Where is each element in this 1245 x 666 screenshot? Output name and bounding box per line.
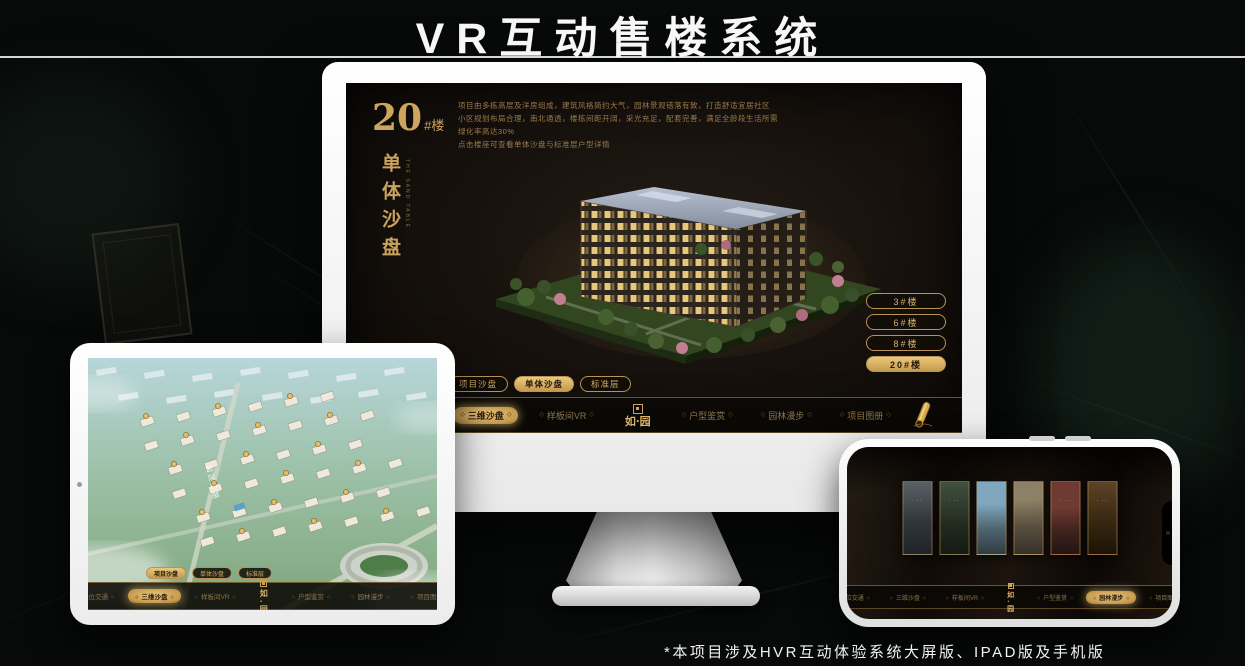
tablet-tab-group: 项目沙盘单体沙盘标准层 [146, 567, 272, 579]
screen-subtitle-latin: THE SAND TABLE [404, 159, 410, 229]
tablet-screen: 园区三路 项目沙盘单体沙盘标准层 区位交通三维沙盘样板间VR如·园户型鉴赏园林漫… [88, 358, 437, 610]
nav-item-样板间VR[interactable]: 样板间VR [532, 407, 601, 424]
seal-dot [262, 582, 265, 585]
building-render [486, 149, 886, 369]
description-line: 项目由多栋高层及洋房组成，建筑风格简约大气，园林景观错落有致，打造舒适宜居社区 [458, 99, 802, 112]
tab-标准层[interactable]: 标准层 [580, 376, 631, 392]
phone-nav-bar: 区位交通三维沙盘样板间VR如·园户型鉴赏园林漫步项目图册 [847, 585, 1172, 609]
seal-dot [1009, 584, 1012, 587]
map-signboard [92, 223, 193, 345]
tablet-device: 园区三路 项目沙盘单体沙盘标准层 区位交通三维沙盘样板间VR如·园户型鉴赏园林漫… [70, 343, 455, 625]
monitor-stand-neck [566, 510, 742, 594]
panorama-panel-6[interactable] [1087, 481, 1117, 555]
brand-seal-icon [633, 404, 643, 414]
description-line: 小区规划布局合理，南北通透，楼栋间距开阔，采光充足，配套完善，满足全龄段生活所需 [458, 112, 802, 125]
nav-item-三维沙盘[interactable]: 三维沙盘 [883, 591, 933, 604]
building-suffix: #楼 [424, 118, 444, 133]
panorama-panel-4[interactable] [1013, 481, 1043, 555]
floor-button-3#楼[interactable]: 3#楼 [866, 293, 946, 309]
tab-项目沙盘[interactable]: 项目沙盘 [146, 567, 186, 579]
title-divider [0, 56, 1245, 58]
nav-item-户型鉴赏[interactable]: 户型鉴赏 [675, 407, 740, 424]
panorama-panel-1[interactable] [902, 481, 932, 555]
nav-item-三维沙盘[interactable]: 三维沙盘 [453, 407, 518, 424]
nav-item-区位交通[interactable]: 区位交通 [88, 589, 121, 603]
nav-item-园林漫步[interactable]: 园林漫步 [1086, 591, 1136, 604]
building-number: 20 [372, 97, 422, 139]
brand-logo-text: 如·园 [1007, 591, 1014, 612]
tab-单体沙盘[interactable]: 单体沙盘 [514, 376, 574, 392]
brand-logo: 如·园 [625, 404, 651, 427]
nav-item-项目图册[interactable]: 项目图册 [833, 407, 898, 424]
nav-item-园林漫步[interactable]: 园林漫步 [754, 407, 819, 424]
description-line: 绿化率高达30% [458, 125, 802, 138]
floor-button-group: 3#楼6#楼8#楼20#楼 [866, 293, 946, 372]
sandbox-tab-group: 项目沙盘单体沙盘标准层 [448, 376, 631, 392]
monitor-stand-base [552, 586, 760, 606]
phone-screen: 区位交通三维沙盘样板间VR如·园户型鉴赏园林漫步项目图册 [847, 447, 1172, 619]
nav-item-项目图册[interactable]: 项目图册 [1142, 591, 1172, 604]
building-title: 20#楼 [372, 97, 444, 139]
phone-notch [1162, 501, 1172, 565]
phone-volume-button [1065, 436, 1091, 441]
nav-item-园林漫步[interactable]: 园林漫步 [344, 589, 397, 603]
screen-subtitle-vertical: 单体沙盘 [376, 153, 403, 265]
tab-单体沙盘[interactable]: 单体沙盘 [192, 567, 232, 579]
nav-item-样板间VR[interactable]: 样板间VR [939, 591, 991, 604]
phone-volume-button [1029, 436, 1055, 441]
project-description: 项目由多栋高层及洋房组成，建筑风格简约大气，园林景观错落有致，打造舒适宜居社区小… [458, 99, 802, 151]
panorama-panel-3[interactable] [976, 481, 1006, 555]
floor-button-6#楼[interactable]: 6#楼 [866, 314, 946, 330]
panorama-panel-5[interactable] [1050, 481, 1080, 555]
panorama-panel-row [902, 481, 1117, 555]
panorama-panel-2[interactable] [939, 481, 969, 555]
brand-seal-icon [1008, 583, 1014, 589]
floor-button-8#楼[interactable]: 8#楼 [866, 335, 946, 351]
floor-button-20#楼[interactable]: 20#楼 [866, 356, 946, 372]
nav-item-区位交通[interactable]: 区位交通 [847, 591, 877, 604]
tablet-nav-bar: 区位交通三维沙盘样板间VR如·园户型鉴赏园林漫步项目图册 [88, 582, 437, 610]
brand-logo-text: 如·园 [625, 416, 651, 427]
brand-seal-icon [260, 580, 267, 587]
nav-item-三维沙盘[interactable]: 三维沙盘 [128, 589, 181, 603]
brand-logo: 如·园 [1007, 583, 1014, 612]
brand-logo-text: 如·园 [260, 589, 268, 611]
tab-项目沙盘[interactable]: 项目沙盘 [448, 376, 508, 392]
tablet-camera [77, 482, 82, 487]
footnote: *本项目涉及HVR互动体验系统大屏版、IPAD版及手机版 [664, 641, 1105, 662]
phone-device: 区位交通三维沙盘样板间VR如·园户型鉴赏园林漫步项目图册 [839, 439, 1180, 627]
scroll-ornament-icon [912, 400, 934, 431]
nav-item-户型鉴赏[interactable]: 户型鉴赏 [285, 589, 338, 603]
phone-camera [1166, 531, 1170, 535]
nav-item-户型鉴赏[interactable]: 户型鉴赏 [1030, 591, 1080, 604]
brand-logo: 如·园 [260, 580, 268, 611]
nav-item-项目图册[interactable]: 项目图册 [404, 589, 437, 603]
tab-标准层[interactable]: 标准层 [238, 567, 272, 579]
seal-dot [636, 407, 639, 410]
nav-item-样板间VR[interactable]: 样板间VR [188, 589, 243, 603]
